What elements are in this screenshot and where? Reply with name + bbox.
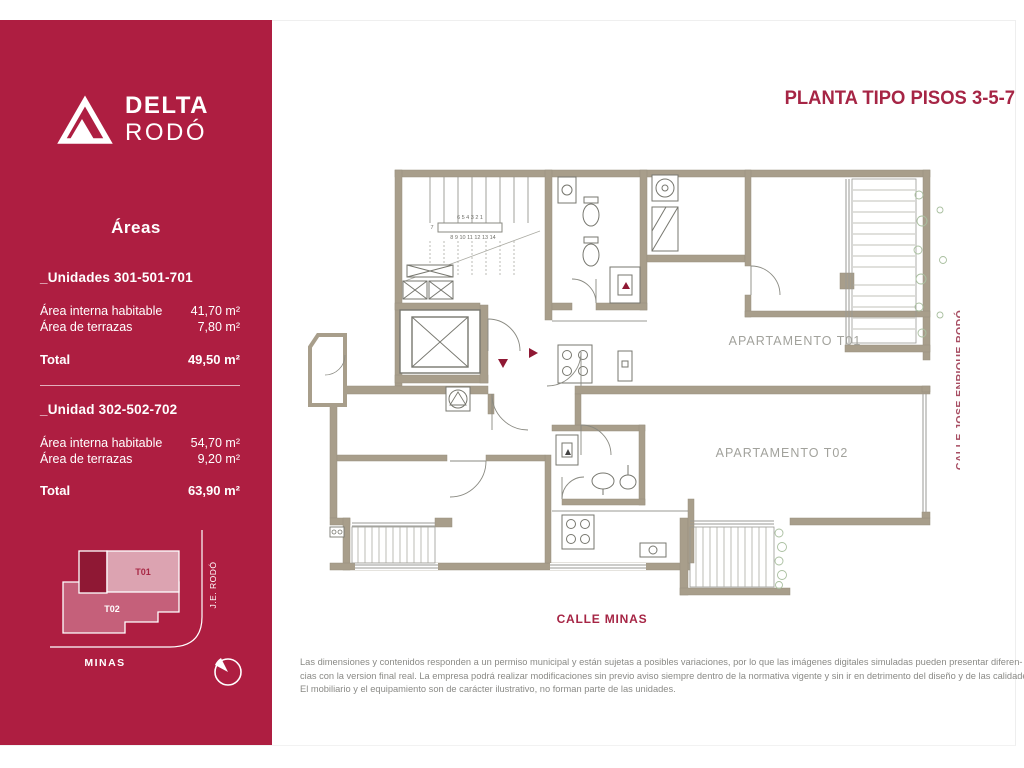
apartment-t01-label: APARTAMENTO T01 — [729, 334, 862, 348]
laundry-closet-t01 — [652, 175, 678, 251]
unit1-row-interna-value: 41,70 m² — [191, 303, 240, 319]
unit1-total: Total 49,50 m² — [40, 352, 240, 367]
stair-numbers-down: 8 9 10 11 12 13 14 — [450, 235, 495, 241]
bathroom-t01-fixtures — [558, 177, 640, 303]
unit1-row-terrazas: Área de terrazas 7,80 m² — [40, 319, 240, 335]
unit2-total: Total 63,90 m² — [40, 483, 240, 498]
street-minas-label: CALLE MINAS — [557, 612, 648, 626]
minimap-street-minas-label: MINAS — [84, 657, 125, 669]
unit2-total-value: 63,90 m² — [188, 483, 240, 498]
kitchen-t02 — [552, 511, 688, 557]
unit2-total-label: Total — [40, 483, 70, 498]
brand-name: DELTA RODÓ — [125, 92, 209, 146]
sidebar-divider — [40, 385, 240, 386]
location-minimap: T01 T02 J.E. RODÓ MINAS — [50, 525, 265, 700]
minimap-core-shape — [79, 551, 107, 593]
bathroom-t02-fixtures — [556, 435, 636, 495]
apartment-t02-label: APARTAMENTO T02 — [716, 446, 849, 460]
north-compass-icon — [215, 658, 241, 685]
left-protrusion-walls — [310, 335, 345, 405]
disclaimer: Las dimensiones y contenidos responden a… — [300, 656, 1014, 697]
minimap-street-rodo-label: J.E. RODÓ — [208, 561, 218, 608]
disclaimer-line3: El mobiliario y el equipamiento son de c… — [300, 683, 1014, 697]
unit1-row-terrazas-value: 7,80 m² — [198, 319, 240, 335]
brand-name-line2: RODÓ — [125, 119, 209, 146]
minimap-t01-label: T01 — [135, 567, 151, 577]
areas-heading: Áreas — [0, 218, 272, 238]
disclaimer-line1: Las dimensiones y contenidos responden a… — [300, 656, 1014, 670]
terrace-t02 — [690, 527, 787, 589]
unit1-title: _Unidades 301-501-701 — [40, 270, 193, 285]
unit2-row-terrazas: Área de terrazas 9,20 m² — [40, 451, 240, 467]
unit1-total-value: 49,50 m² — [188, 352, 240, 367]
vent-shafts — [403, 265, 453, 299]
brand-name-line1: DELTA — [125, 92, 209, 119]
elevator — [400, 310, 480, 411]
unit2-row-interna-value: 54,70 m² — [191, 435, 240, 451]
unit1-rows: Área interna habitable 41,70 m² Área de … — [40, 303, 240, 335]
unit2-row-terrazas-value: 9,20 m² — [198, 451, 240, 467]
unit1-row-interna: Área interna habitable 41,70 m² — [40, 303, 240, 319]
unit2-row-interna: Área interna habitable 54,70 m² — [40, 435, 240, 451]
minimap-t02-label: T02 — [104, 604, 120, 614]
sidebar: DELTA RODÓ Áreas _Unidades 301-501-701 Á… — [0, 20, 272, 745]
brand-logo: DELTA RODÓ — [55, 84, 255, 154]
plants-bottom-icon — [775, 529, 787, 589]
street-rodo-label: CALLE JOSE ENRIQUE RODÓ — [953, 310, 960, 470]
unit1-row-terrazas-label: Área de terrazas — [40, 319, 132, 335]
disclaimer-line2: cias con la version final real. La empre… — [300, 670, 1014, 684]
delta-triangle-icon — [55, 93, 113, 145]
terrace-t01 — [852, 179, 947, 343]
kitchen-t01 — [552, 321, 647, 383]
stair-numbers-up: 6 5 4 3 2 1 — [457, 215, 483, 221]
entry-arrows — [498, 348, 538, 368]
unit2-title: _Unidad 302-502-702 — [40, 402, 177, 417]
floor-plan: 6 5 4 3 2 1 7 8 9 10 11 12 13 14 — [300, 155, 960, 640]
stair-number-mid: 7 — [430, 225, 433, 231]
unit1-total-label: Total — [40, 352, 70, 367]
unit2-row-terrazas-label: Área de terrazas — [40, 451, 132, 467]
unit2-row-interna-label: Área interna habitable — [40, 435, 162, 451]
unit2-rows: Área interna habitable 54,70 m² Área de … — [40, 435, 240, 467]
page-title: PLANTA TIPO PISOS 3-5-7 — [709, 88, 1015, 110]
door-swings — [325, 266, 780, 499]
unit1-row-interna-label: Área interna habitable — [40, 303, 162, 319]
plan-walls — [330, 170, 930, 595]
